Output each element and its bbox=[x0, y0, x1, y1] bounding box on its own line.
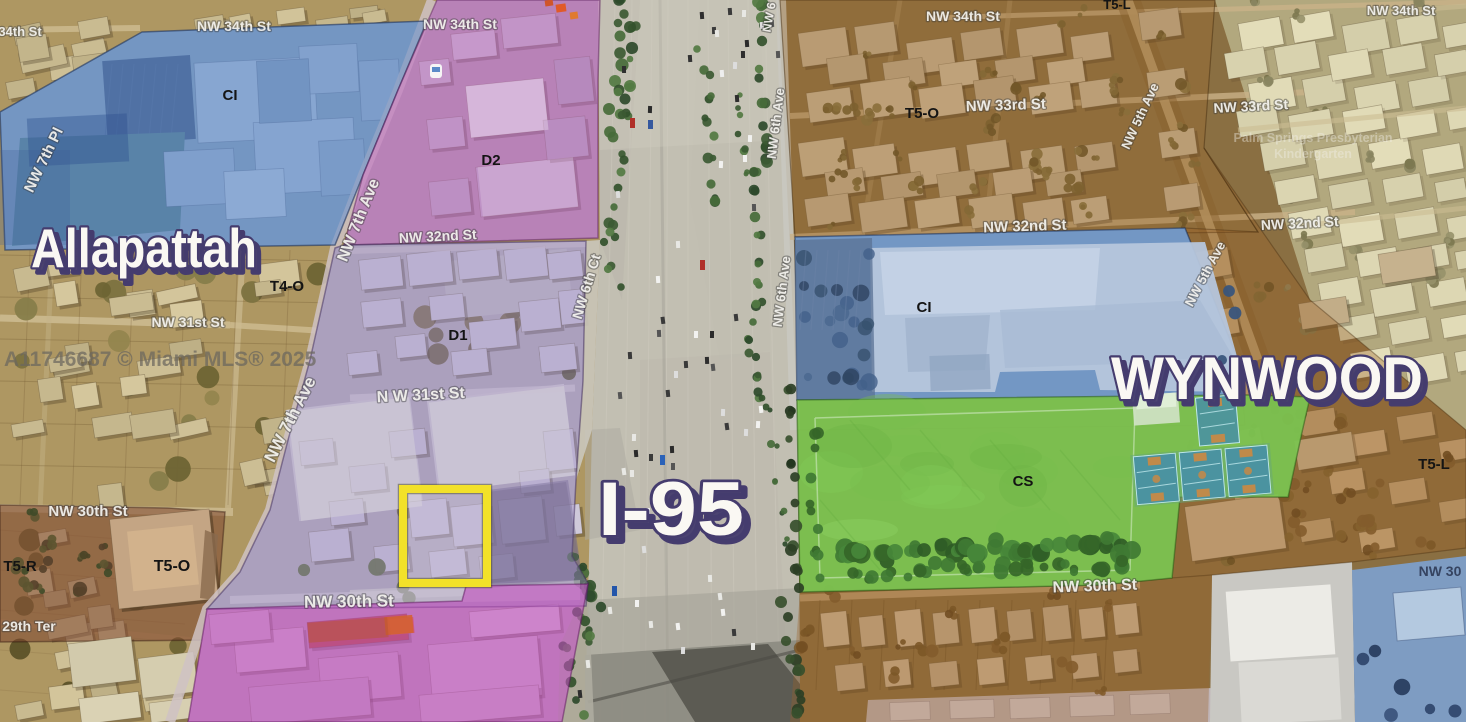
svg-text:WYNWOOD: WYNWOOD bbox=[1111, 345, 1423, 412]
svg-text:NW 30th St: NW 30th St bbox=[304, 591, 394, 612]
svg-text:T5-L: T5-L bbox=[1103, 0, 1131, 12]
svg-text:NW 31st St: NW 31st St bbox=[151, 314, 224, 330]
svg-text:T5-O: T5-O bbox=[154, 558, 190, 575]
svg-text:D2: D2 bbox=[481, 152, 500, 169]
svg-text:I-95: I-95 bbox=[598, 467, 744, 552]
svg-text:T5-R: T5-R bbox=[3, 558, 37, 575]
svg-text:NW 30th St: NW 30th St bbox=[1052, 577, 1138, 597]
svg-text:Kindergarten: Kindergarten bbox=[1274, 147, 1352, 161]
svg-text:T5-L: T5-L bbox=[1418, 456, 1450, 473]
svg-text:T5-O: T5-O bbox=[905, 105, 940, 122]
svg-text:NW 34th St: NW 34th St bbox=[197, 18, 271, 34]
svg-text:NW 34th St: NW 34th St bbox=[926, 8, 1000, 24]
svg-text:CI: CI bbox=[223, 87, 238, 104]
svg-text:A11746687 © Miami MLS® 2025: A11746687 © Miami MLS® 2025 bbox=[4, 348, 317, 371]
svg-text:Allapattah: Allapattah bbox=[31, 217, 257, 279]
svg-text:29th Ter: 29th Ter bbox=[2, 618, 56, 634]
svg-text:CI: CI bbox=[917, 299, 932, 316]
svg-text:NW 30: NW 30 bbox=[1419, 563, 1462, 579]
svg-text:NW 32nd St: NW 32nd St bbox=[983, 217, 1067, 237]
svg-text:NW 33rd St: NW 33rd St bbox=[966, 96, 1047, 116]
svg-text:T4-O: T4-O bbox=[270, 278, 305, 295]
svg-text:CS: CS bbox=[1013, 473, 1034, 490]
svg-text:Palm Springs Presbyterian: Palm Springs Presbyterian bbox=[1233, 131, 1392, 145]
svg-text:34th St: 34th St bbox=[0, 24, 42, 39]
svg-text:NW 34th St: NW 34th St bbox=[423, 16, 497, 32]
svg-text:NW 34th St: NW 34th St bbox=[1367, 3, 1436, 18]
svg-text:NW 30th St: NW 30th St bbox=[48, 503, 127, 520]
svg-text:D1: D1 bbox=[448, 327, 467, 344]
